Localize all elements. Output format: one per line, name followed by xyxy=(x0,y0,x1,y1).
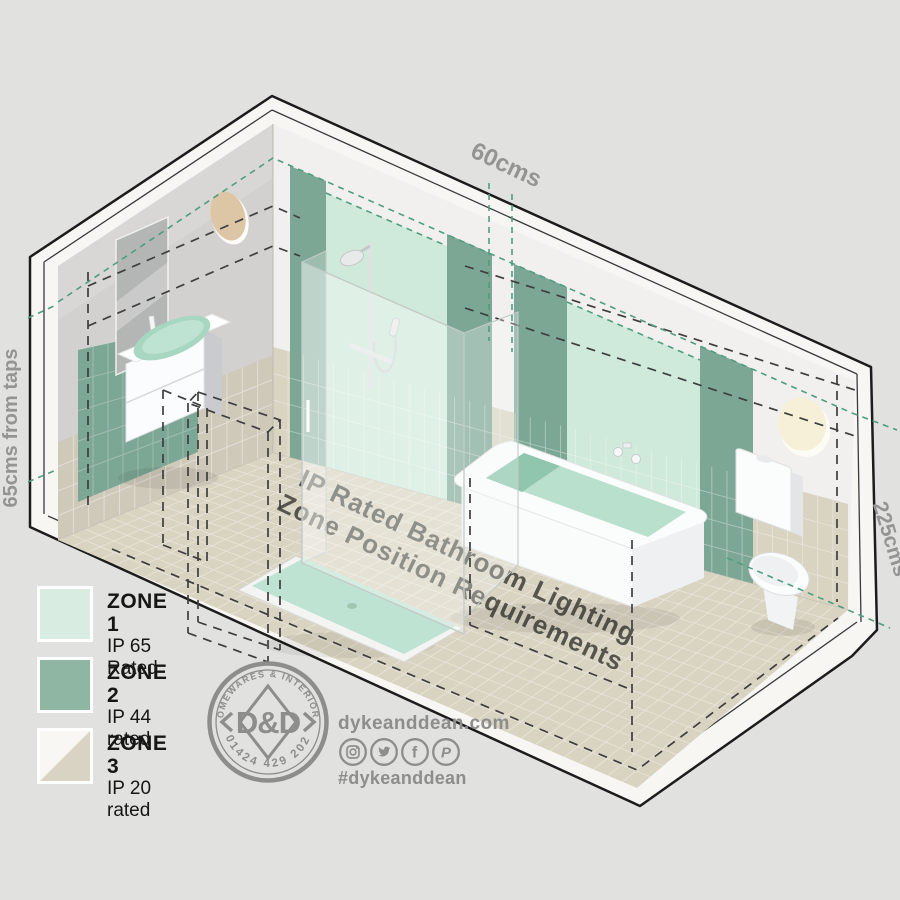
infographic-canvas: IP Rated Bathroom Lighting Zone Position… xyxy=(0,0,900,900)
zone3-label: ZONE 3 xyxy=(107,732,167,778)
pinterest-icon[interactable]: P xyxy=(431,737,461,767)
instagram-icon[interactable] xyxy=(338,737,368,767)
website-link[interactable]: dykeanddean.com xyxy=(338,713,508,735)
legend-item-zone3: ZONE 3 IP 20 rated xyxy=(37,728,167,822)
zone1-swatch xyxy=(37,586,93,642)
zone2-swatch xyxy=(37,657,93,713)
twitter-icon[interactable] xyxy=(369,737,399,767)
zone3-swatch xyxy=(37,728,93,784)
brand-logo: HOMEWARES & INTERIORS 01424 429 202 D&D xyxy=(202,656,334,788)
contact-block: dykeanddean.com f P #dykeanddean xyxy=(338,713,508,789)
svg-text:P: P xyxy=(441,745,452,762)
svg-text:f: f xyxy=(412,745,418,762)
hashtag-text[interactable]: #dykeanddean xyxy=(338,768,508,789)
zone3-rating: IP 20 rated xyxy=(107,778,167,822)
facebook-icon[interactable]: f xyxy=(400,737,430,767)
dim-top-label: 60cms xyxy=(467,137,546,193)
zone2-label: ZONE 2 xyxy=(107,661,167,707)
zone1-label: ZONE 1 xyxy=(107,590,167,636)
logo-monogram: D&D xyxy=(236,705,301,740)
social-icons: f P xyxy=(338,737,508,767)
dim-left-label: 65cms from taps xyxy=(0,349,22,508)
